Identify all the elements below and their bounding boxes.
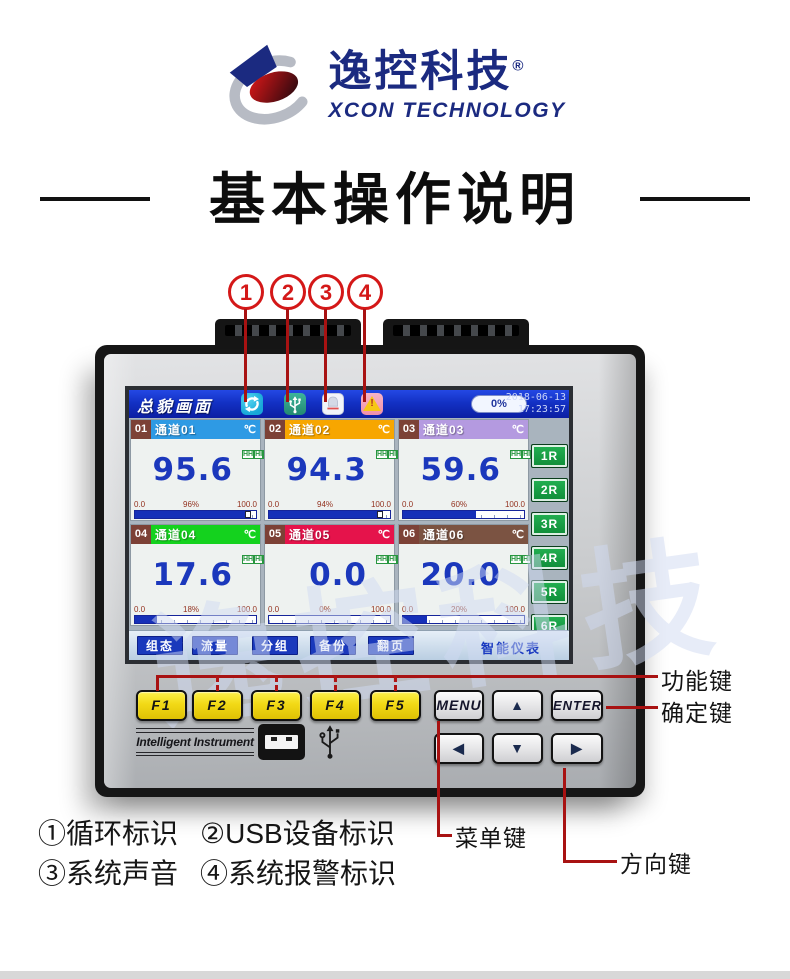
key-f4[interactable]: F4 [310,690,361,721]
channel-number: 02 [265,420,285,439]
channel-bar [268,510,391,519]
alarm-level-badges: HHHILOLL [510,443,525,461]
channel-bar [402,510,525,519]
function-keys-line-end [156,675,159,691]
channel-scale: 0.018%100.0 [131,605,260,615]
channel-name: 通道02 [289,421,330,438]
brand-logo-icon [224,40,320,136]
callout-4: 4 [347,274,383,310]
time: 17:23:57 [518,404,566,415]
legend-line-1: ①循环标识②USB设备标识 [38,812,417,852]
channel-card-01: 01 通道01℃ 95.6 HHHILOLL 0.096%100.0 [130,419,261,521]
date: 2018-06-13 [506,392,566,403]
function-keys-line [156,675,658,678]
alarm-level-badges: HHHILOLL [242,443,257,461]
channel-name: 通道04 [155,526,196,543]
datetime: 2018-06-13 17:23:57 [506,392,566,416]
channel-card-03: 03 通道03℃ 59.6 HHHILOLL 0.060%100.0 [398,419,529,521]
page: 逸控科技® XCON TECHNOLOGY 基本操作说明 1 2 3 4 总貌画… [0,0,790,979]
screen-view-title: 总貌画面 [137,393,213,417]
channel-number: 03 [399,420,419,439]
menu-button-page[interactable]: 翻页 [368,636,414,655]
key-f2[interactable]: F2 [192,690,243,721]
channel-scale: 0.096%100.0 [131,500,260,510]
relay-button-4r[interactable]: 4R [531,546,568,570]
bar-knob [377,511,383,518]
bar-knob [245,511,251,518]
label-function-keys: 功能键 [661,662,733,696]
legend-usb: ②USB设备标识 [200,818,395,849]
device-screen: 总貌画面 [125,386,573,664]
channel-scale: 0.094%100.0 [265,500,394,510]
screen-brand-label: 智能仪表 [481,638,541,657]
legend-line-2: ③系统声音④系统报警标识 [38,852,418,892]
menu-button-backup[interactable]: 备份 [310,636,356,655]
key-enter[interactable]: ENTER [551,690,603,721]
title-rule-right [640,197,750,201]
legend-alarm: ④系统报警标识 [200,858,396,889]
enter-key-line [606,706,658,709]
channel-value: 94.3 [287,452,368,488]
alarm-level-badges: HHHILOLL [376,443,391,461]
channel-card-06: 06 通道06℃ 20.0 HHHILOLL 0.020%100.0 [398,524,529,626]
channel-number: 05 [265,525,285,544]
channel-number: 01 [131,420,151,439]
channel-unit: ℃ [378,528,390,541]
channel-value: 95.6 [153,452,234,488]
relay-button-column: 1R 2R 3R 4R 5R 6R [531,444,568,638]
key-f5[interactable]: F5 [370,690,421,721]
callout-1: 1 [228,274,264,310]
alarm-level-badges: HHHILOLL [376,548,391,566]
channel-name: 通道03 [423,421,464,438]
key-arrow-down[interactable]: ▼ [492,733,543,764]
menu-key-line-h [437,834,452,837]
callout-line-2 [286,309,289,402]
channel-bar [134,510,257,519]
menu-button-flow[interactable]: 流量 [192,636,238,655]
callout-line-4 [363,309,366,402]
screen-status-bar: 总貌画面 [129,390,569,418]
key-menu[interactable]: MENU [434,690,484,721]
channel-number: 04 [131,525,151,544]
alarm-level-badges: HHHILOLL [242,548,257,566]
channel-bar [402,615,525,624]
channel-value: 17.6 [153,557,234,593]
title-row: 基本操作说明 [0,155,790,236]
channel-unit: ℃ [378,423,390,436]
top-vent-right [383,319,529,349]
channel-unit: ℃ [512,423,524,436]
key-arrow-left[interactable]: ◀ [434,733,484,764]
channel-name: 通道06 [423,526,464,543]
recorder-device: 总貌画面 [95,345,645,797]
channel-value: 0.0 [309,557,367,593]
relay-button-5r[interactable]: 5R [531,580,568,604]
channel-unit: ℃ [244,528,256,541]
key-f3[interactable]: F3 [251,690,302,721]
label-menu-key: 菜单键 [455,819,527,853]
brand-name-cn: 逸控科技® [328,50,565,95]
alarm-level-badges: HHHILOLL [510,548,525,566]
function-keys-tick [394,676,397,691]
title-rule-left [40,197,150,201]
menu-button-group[interactable]: 分组 [252,636,298,655]
label-enter-key: 确定键 [661,694,733,728]
menu-key-line-v [437,721,440,837]
channel-scale: 0.020%100.0 [399,605,528,615]
channel-card-02: 02 通道02℃ 94.3 HHHILOLL 0.094%100.0 [264,419,395,521]
label-direction-keys: 方向键 [620,845,692,879]
channel-bar [268,615,391,624]
callout-3: 3 [308,274,344,310]
panel-label: Intelligent Instrument [136,726,254,758]
legend-sound: ③系统声音 [38,858,178,889]
registered-mark: ® [512,58,523,75]
function-keys-tick [216,676,219,691]
channel-card-04: 04 通道04℃ 17.6 HHHILOLL 0.018%100.0 [130,524,261,626]
page-title: 基本操作说明 [209,168,581,231]
relay-button-1r[interactable]: 1R [531,444,568,468]
usb-port[interactable] [258,724,305,760]
channel-name: 通道05 [289,526,330,543]
callout-line-3 [324,309,327,402]
channel-number: 06 [399,525,419,544]
channel-card-05: 05 通道05℃ 0.0 HHHILOLL 0.00%100.0 [264,524,395,626]
callout-line-1 [244,309,247,402]
channel-scale: 0.060%100.0 [399,500,528,510]
channel-bar [134,615,257,624]
brand-logo: 逸控科技® XCON TECHNOLOGY [0,40,790,136]
relay-button-2r[interactable]: 2R [531,478,568,502]
menu-button-config[interactable]: 组态 [137,636,183,655]
channel-value: 20.0 [421,557,502,593]
legend-cycle: ①循环标识 [38,818,178,849]
direction-keys-line-v [563,768,566,863]
channel-name: 通道01 [155,421,196,438]
footer-strip [0,971,790,979]
channel-unit: ℃ [244,423,256,436]
callout-2: 2 [270,274,306,310]
channel-unit: ℃ [512,528,524,541]
usb-symbol-icon [317,723,343,761]
function-keys-tick [334,676,337,691]
screen-menu-bar: 组态 流量 分组 备份 翻页 智能仪表 [129,630,569,660]
channel-value: 59.6 [421,452,502,488]
key-arrow-up[interactable]: ▲ [492,690,543,721]
channel-scale: 0.00%100.0 [265,605,394,615]
relay-button-3r[interactable]: 3R [531,512,568,536]
function-keys-tick [275,676,278,691]
brand-name-en: XCON TECHNOLOGY [328,99,565,123]
key-arrow-right[interactable]: ▶ [551,733,603,764]
key-f1[interactable]: F1 [136,690,187,721]
direction-keys-line-h [563,860,617,863]
